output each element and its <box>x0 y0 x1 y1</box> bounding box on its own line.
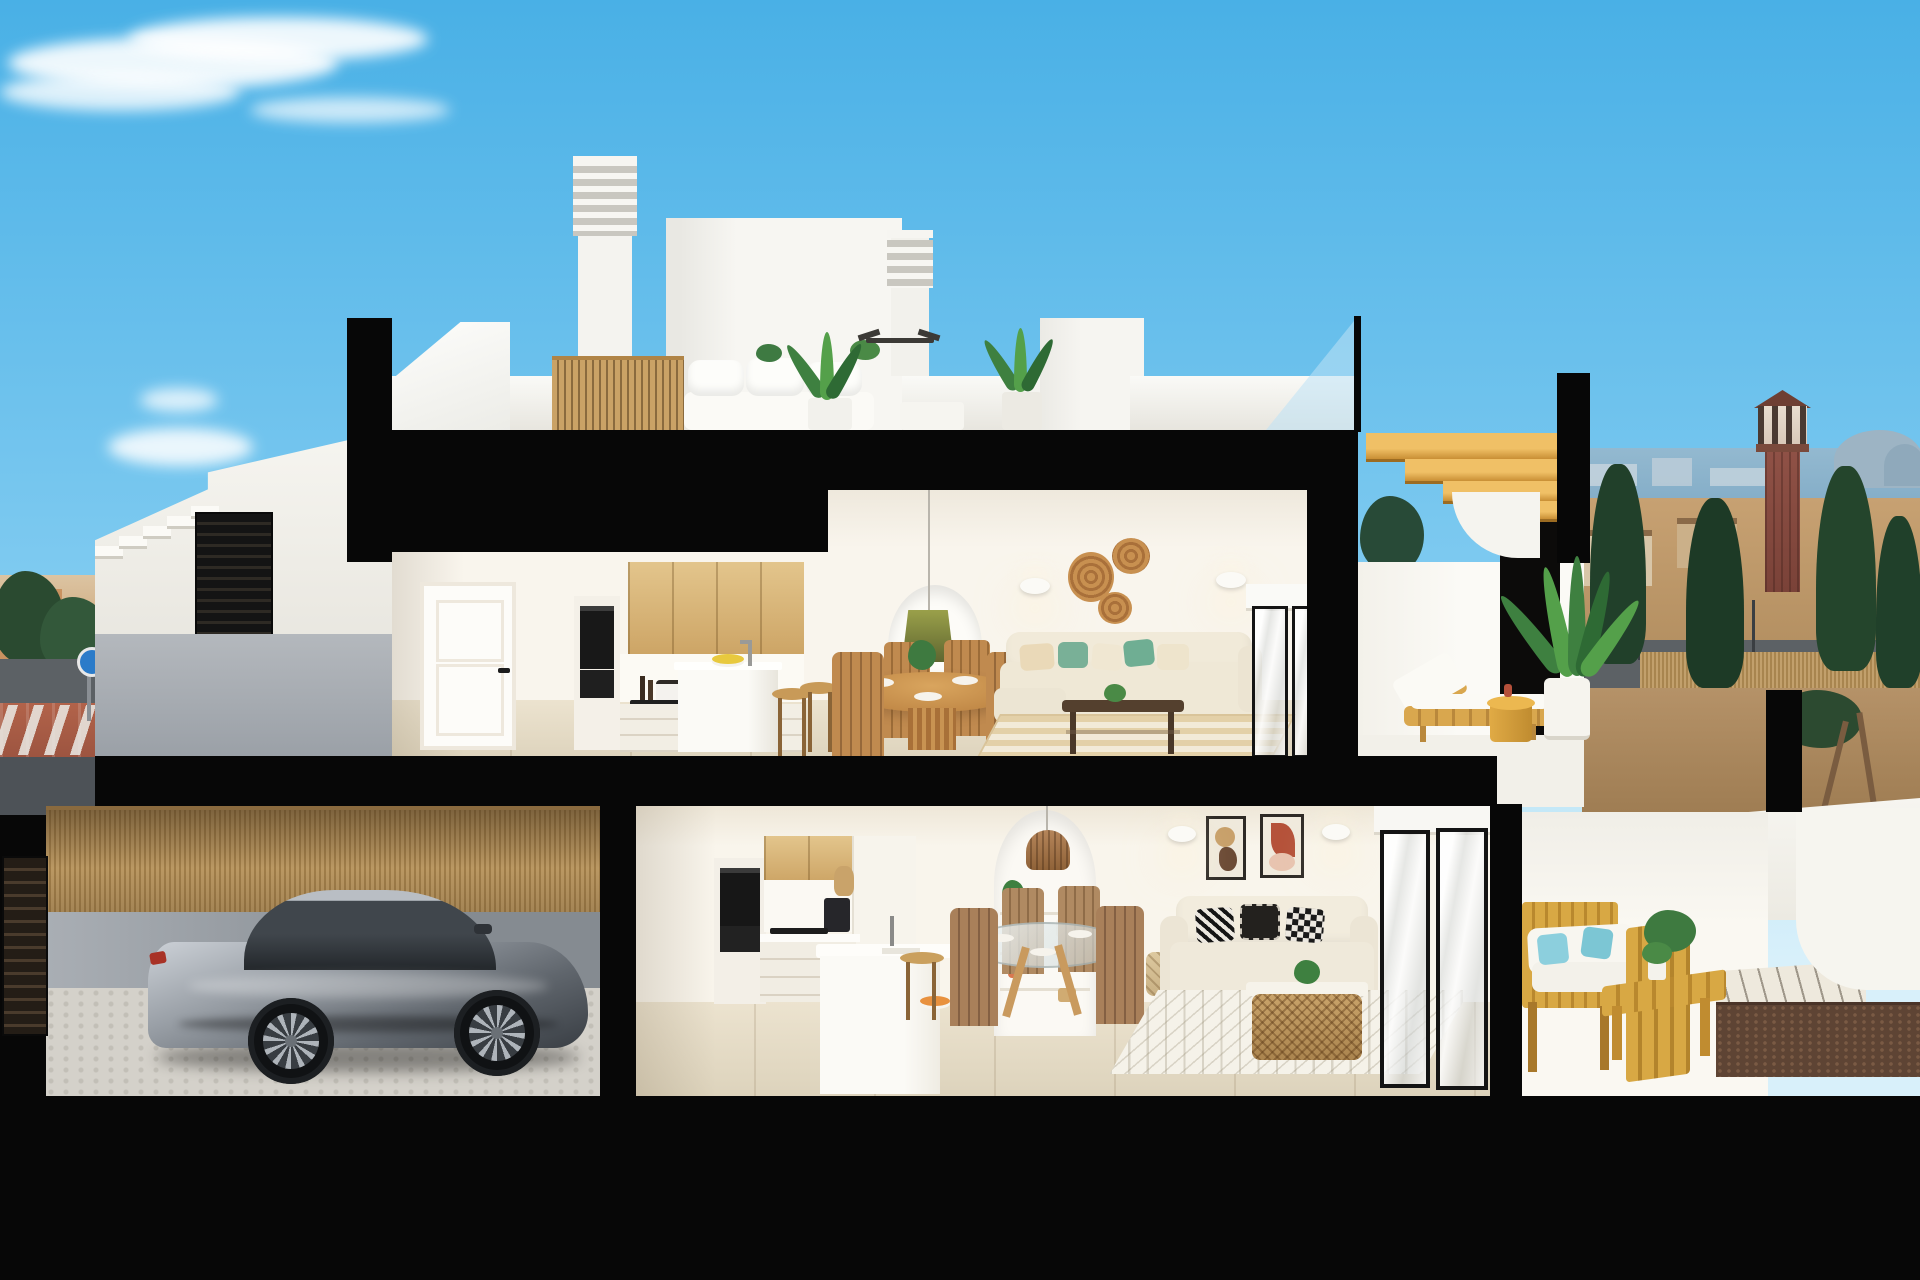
car-mirror <box>474 924 492 934</box>
cloud-large <box>0 5 480 155</box>
chimney-cap <box>887 230 933 238</box>
wall-sconce-icon <box>1020 578 1050 594</box>
roof-low-table <box>900 402 964 430</box>
pendant-cable <box>928 490 930 612</box>
cloud-small <box>140 388 218 412</box>
table-plate <box>1068 930 1092 938</box>
car-hubcap <box>285 1035 297 1047</box>
island-faucet-icon <box>740 640 752 644</box>
bg-conifer <box>1876 516 1920 688</box>
under-stair-curved-wall <box>1452 492 1540 558</box>
roof-palm-planter <box>808 398 852 430</box>
dried-plant-vase <box>834 866 854 896</box>
art-shape <box>1269 853 1295 871</box>
peninsula-body <box>820 956 940 1094</box>
table-plate <box>1030 948 1056 956</box>
rattan-coffee-table <box>1252 994 1362 1060</box>
abstract-art-frame <box>1260 814 1304 878</box>
glass-balustrade <box>1266 316 1358 430</box>
section-cut-lower-right-column <box>1490 804 1522 1096</box>
table-plate <box>914 692 942 701</box>
bench-table-leg <box>1700 998 1710 1056</box>
coffee-machine <box>824 898 850 932</box>
dining-table-pedestal <box>908 708 956 750</box>
roof-plant-pot <box>1002 392 1042 430</box>
ceiling-fan-icon <box>866 338 934 343</box>
pillow-check <box>1285 906 1326 943</box>
built-in-oven <box>720 868 760 927</box>
roof-volume-right <box>1040 318 1144 430</box>
lower-wall-corner-shade <box>636 806 716 1096</box>
chimney-louvers <box>887 240 933 288</box>
car-cabin <box>244 890 496 970</box>
abstract-art-frame <box>1206 816 1246 880</box>
door-handle-icon <box>498 668 510 673</box>
sliding-door-pane <box>1380 830 1430 1088</box>
rattan-wall-plate <box>1098 592 1132 624</box>
sofa-pillow <box>1019 643 1055 671</box>
dining-chair-lower <box>1096 906 1144 1024</box>
counter-lower <box>760 934 860 942</box>
sofa-pillow-green <box>1058 642 1088 668</box>
sliding-door-pane <box>1252 606 1288 758</box>
table-plate <box>952 676 978 685</box>
upper-cabinets-oak <box>628 562 804 657</box>
section-cut-ground-mass <box>0 1096 1920 1280</box>
pepper-grinder <box>640 676 645 700</box>
stool-leg <box>808 692 812 752</box>
roof-slat-screen <box>552 356 684 434</box>
cloud-puff <box>0 73 240 111</box>
stool-leg <box>778 698 782 756</box>
built-in-microwave <box>580 670 614 698</box>
cloud-puff <box>250 97 450 123</box>
rattan-pendant <box>1026 830 1070 870</box>
sports-car <box>148 890 592 1084</box>
bg-conifer <box>1816 466 1876 671</box>
table-deco-plant <box>1104 684 1126 702</box>
chimney-louvers <box>573 166 637 236</box>
built-in-microwave <box>720 926 760 952</box>
door-panel <box>436 664 504 736</box>
roof-plant-tuft <box>756 344 782 362</box>
bg-skyline <box>1710 468 1768 486</box>
architectural-render-scene: Photorealistic cutaway render of a two-s… <box>0 0 1920 1280</box>
dining-chair <box>832 652 884 756</box>
wall-sconce-icon <box>1216 572 1246 588</box>
wall-sconce-icon <box>1322 824 1350 840</box>
coffee-table-top <box>1062 700 1184 712</box>
table-deco-plant <box>1294 960 1320 984</box>
bench-plant <box>1642 942 1672 964</box>
dining-chair-lower <box>950 908 998 1026</box>
built-in-oven <box>580 606 614 669</box>
bg-conifer <box>1686 498 1744 688</box>
roof-stair-bulkhead <box>392 322 510 432</box>
lemon-bowl <box>712 654 744 664</box>
curved-wall-right <box>1796 808 1920 990</box>
lounger-leg <box>1420 726 1426 742</box>
table-vase-red <box>1504 684 1512 697</box>
pillow-dark <box>1240 904 1280 940</box>
bench-table-leg <box>1612 1006 1622 1060</box>
section-cut-terrace-right-edge <box>1766 690 1802 812</box>
section-cut-column-terrace <box>1307 430 1358 762</box>
glass-balustrade-post <box>1354 316 1361 432</box>
art-shape <box>1215 827 1235 847</box>
section-cut-roof-slab-thick <box>392 430 828 552</box>
jute-rug <box>974 714 1296 762</box>
stool-leg <box>906 962 910 1020</box>
section-cut-roof-slab-thin <box>828 430 1358 490</box>
stool-leg <box>932 962 936 1020</box>
section-cut-mid-slab <box>95 756 1497 806</box>
section-cut-garage-separator <box>600 806 636 1096</box>
sofa-pillow-green <box>1123 639 1156 668</box>
wall-sconce-icon <box>1168 826 1196 842</box>
lookout-tower-balcony <box>1756 444 1809 452</box>
art-shape <box>1219 847 1237 871</box>
lookout-tower-cupola <box>1758 406 1807 446</box>
kitchen-island <box>678 666 778 752</box>
section-cut-left-column <box>347 318 392 562</box>
car-hubcap <box>491 1027 503 1039</box>
outdoor-sofa-leg <box>1528 1002 1537 1072</box>
cloud-small <box>108 428 253 466</box>
lookout-tower-body <box>1765 452 1800 592</box>
lamppost <box>1752 600 1755 660</box>
terrace-palm-pot <box>1544 678 1590 740</box>
sofa-pillow <box>1157 644 1189 670</box>
roof-sofa-cushion <box>688 360 744 396</box>
peninsula-faucet-icon <box>890 916 894 946</box>
rattan-wall-plate <box>1112 538 1150 574</box>
garage-sectional-door <box>2 856 48 1036</box>
bg-mountain <box>1884 444 1920 486</box>
sofa-pillow <box>1091 643 1123 672</box>
art-shape <box>1271 823 1295 857</box>
section-cut-roof-right-edge <box>1557 373 1590 563</box>
coffee-table-shelf <box>1066 730 1180 734</box>
street-level-wall <box>95 634 392 774</box>
drum-side-table-top <box>1487 696 1535 710</box>
bg-skyline <box>1652 458 1692 486</box>
stool-leg <box>802 698 806 756</box>
sliding-door-pane <box>1436 828 1488 1090</box>
door-panel <box>436 600 504 662</box>
pillow-zigzag <box>1195 907 1235 944</box>
pillow-aqua <box>1580 926 1614 960</box>
slatted-gate <box>195 512 273 640</box>
table-centerpiece-plant <box>908 640 936 670</box>
cloud-puff <box>128 17 428 61</box>
pillow-aqua <box>1537 933 1570 966</box>
chimney-cap <box>573 156 637 166</box>
pepper-grinder <box>648 680 653 700</box>
gravel-strip <box>1716 1002 1920 1077</box>
